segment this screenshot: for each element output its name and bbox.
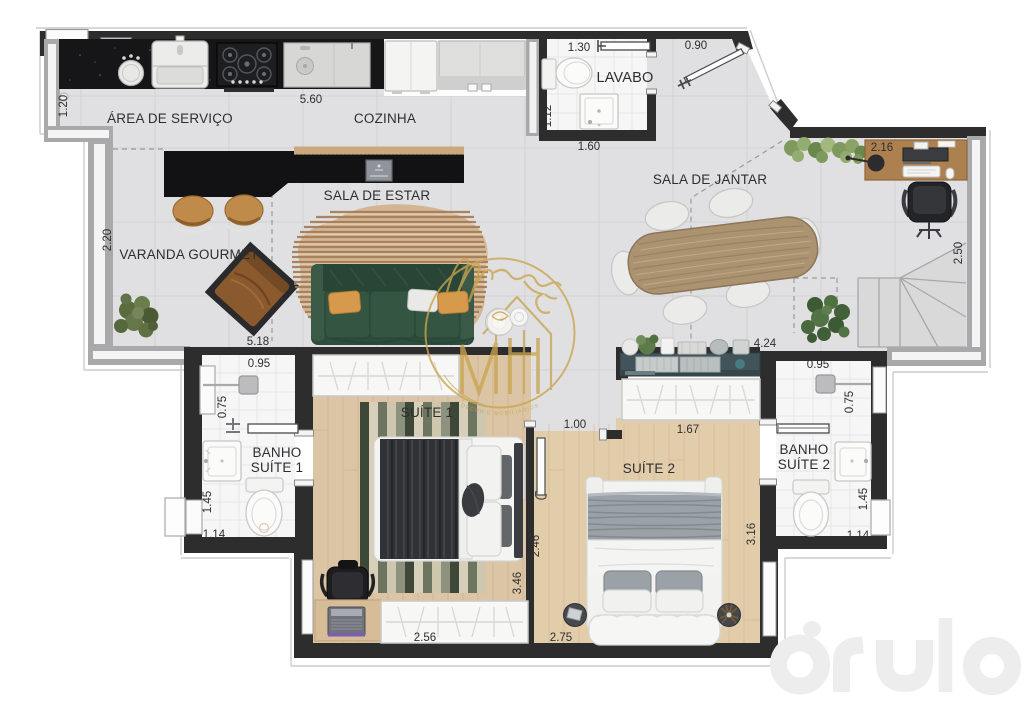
svg-text:4.24: 4.24 xyxy=(754,338,777,350)
svg-text:COZINHA: COZINHA xyxy=(354,111,416,126)
svg-text:VARANDA GOURMET: VARANDA GOURMET xyxy=(119,247,258,262)
svg-text:SALA DE JANTAR: SALA DE JANTAR xyxy=(653,172,767,187)
svg-text:0.90: 0.90 xyxy=(685,40,707,52)
svg-text:5.60: 5.60 xyxy=(300,94,322,106)
svg-text:1.12: 1.12 xyxy=(542,105,554,127)
svg-text:0.95: 0.95 xyxy=(807,359,829,371)
svg-text:1.14: 1.14 xyxy=(847,530,870,542)
svg-text:2.56: 2.56 xyxy=(414,632,436,644)
svg-text:3.16: 3.16 xyxy=(746,523,758,545)
svg-text:1.45: 1.45 xyxy=(858,488,870,510)
svg-text:SUÍTE 1: SUÍTE 1 xyxy=(401,405,453,420)
svg-text:0.75: 0.75 xyxy=(844,391,856,413)
svg-text:2.20: 2.20 xyxy=(102,229,114,251)
svg-text:0.75: 0.75 xyxy=(217,396,229,418)
svg-text:2.46: 2.46 xyxy=(530,535,542,557)
svg-text:1.60: 1.60 xyxy=(578,141,600,153)
svg-text:3.46: 3.46 xyxy=(512,572,524,594)
svg-text:2.50: 2.50 xyxy=(953,242,965,264)
svg-text:2.16: 2.16 xyxy=(871,142,893,154)
svg-text:BANHO: BANHO xyxy=(779,442,828,457)
svg-text:1.45: 1.45 xyxy=(202,491,214,513)
svg-text:1.20: 1.20 xyxy=(58,95,70,117)
svg-text:SUÍTE 2: SUÍTE 2 xyxy=(623,461,675,476)
svg-text:1.67: 1.67 xyxy=(677,424,699,436)
svg-text:5.18: 5.18 xyxy=(247,336,269,348)
svg-text:0.95: 0.95 xyxy=(248,358,270,370)
svg-text:SALA DE ESTAR: SALA DE ESTAR xyxy=(324,188,431,203)
svg-text:SUÍTE 1: SUÍTE 1 xyxy=(251,460,303,475)
svg-text:BANHO: BANHO xyxy=(252,445,301,460)
svg-text:ÁREA DE SERVIÇO: ÁREA DE SERVIÇO xyxy=(107,111,233,126)
svg-text:SUÍTE 2: SUÍTE 2 xyxy=(778,457,830,472)
svg-text:LAVABO: LAVABO xyxy=(596,70,653,86)
svg-text:2.75: 2.75 xyxy=(550,632,572,644)
svg-text:1.00: 1.00 xyxy=(564,419,586,431)
svg-text:1.30: 1.30 xyxy=(568,42,590,54)
svg-text:1.14: 1.14 xyxy=(203,529,226,541)
